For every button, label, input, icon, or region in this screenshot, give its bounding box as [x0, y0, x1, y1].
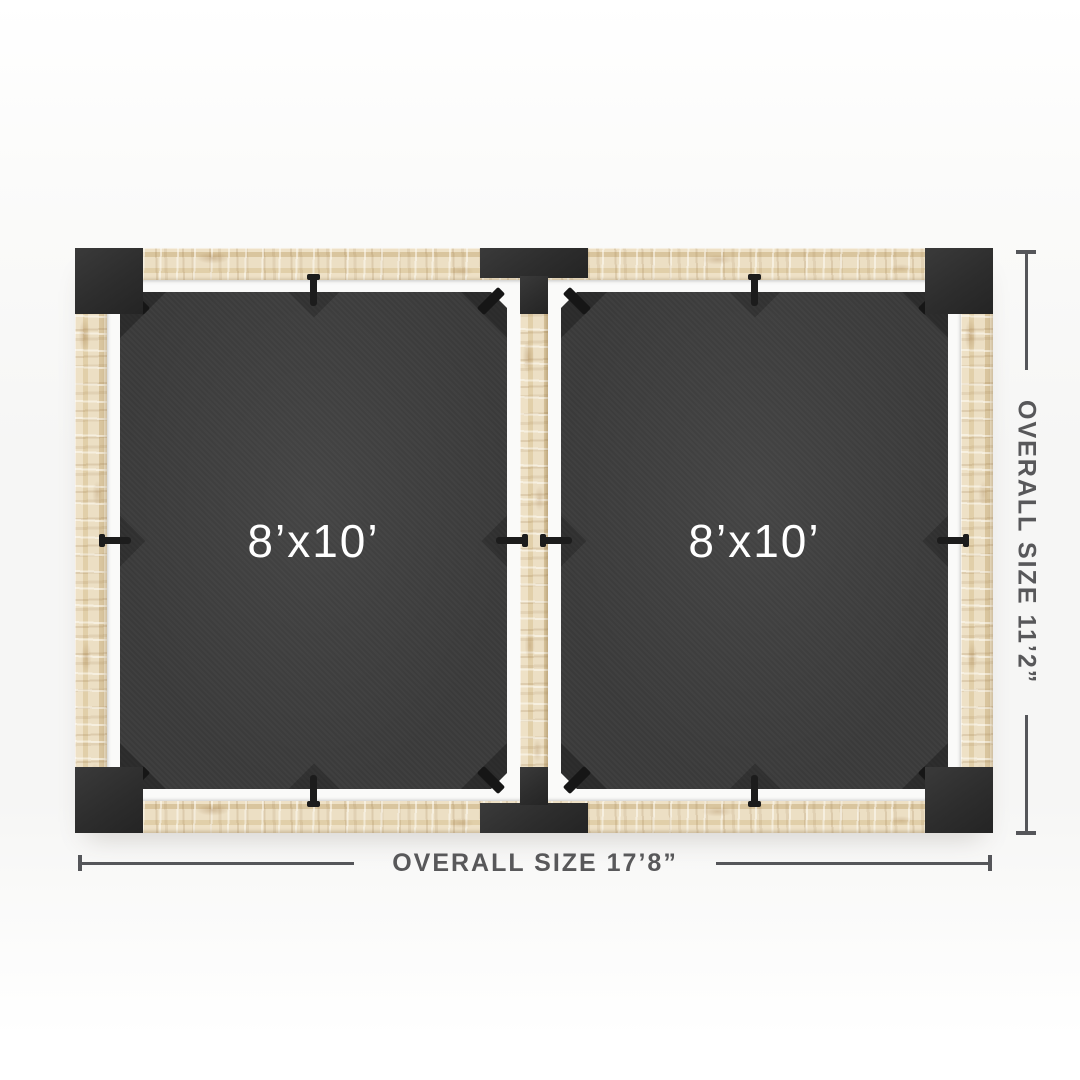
attachment-pin-left [540, 537, 572, 544]
attachment-pin-bottom [751, 775, 758, 807]
shade-sail-right: 8’x10’ [561, 292, 948, 789]
attachment-pin-bottom [310, 775, 317, 807]
pergola-top-view: 8’x10’ 8’x10’ [75, 248, 993, 833]
height-dimension-label: OVERALL SIZE 11’2” [1012, 400, 1041, 684]
bay-left: 8’x10’ [107, 280, 520, 801]
height-dimension: OVERALL SIZE 11’2” [1002, 250, 1050, 835]
dimension-line [1025, 715, 1028, 831]
width-dimension-label: OVERALL SIZE 17’8” [392, 849, 678, 878]
dimension-line [716, 862, 988, 865]
dimension-cap-bottom [1016, 831, 1036, 835]
attachment-pin-right [937, 537, 969, 544]
sail-size-label: 8’x10’ [688, 514, 820, 568]
dimension-line [1025, 254, 1028, 370]
width-dimension: OVERALL SIZE 17’8” [78, 852, 992, 874]
shade-sail-left: 8’x10’ [120, 292, 507, 789]
attachment-pin-top [751, 274, 758, 306]
attachment-pin-right [496, 537, 528, 544]
dimension-cap-right [988, 855, 992, 871]
t-bracket-top-stem [520, 276, 548, 314]
t-bracket-bottom-stem [520, 767, 548, 805]
pergola-diagram: 8’x10’ 8’x10’ [0, 0, 1080, 1080]
t-bracket-bottom [480, 803, 588, 833]
corner-bracket-bottom-left [75, 767, 143, 833]
sail-size-label: 8’x10’ [247, 514, 379, 568]
bay-right: 8’x10’ [548, 280, 961, 801]
corner-bracket-bottom-right [925, 767, 993, 833]
dimension-line [82, 862, 354, 865]
attachment-pin-left [99, 537, 131, 544]
t-bracket-top [480, 248, 588, 278]
corner-bracket-top-right [925, 248, 993, 314]
attachment-pin-top [310, 274, 317, 306]
corner-bracket-top-left [75, 248, 143, 314]
